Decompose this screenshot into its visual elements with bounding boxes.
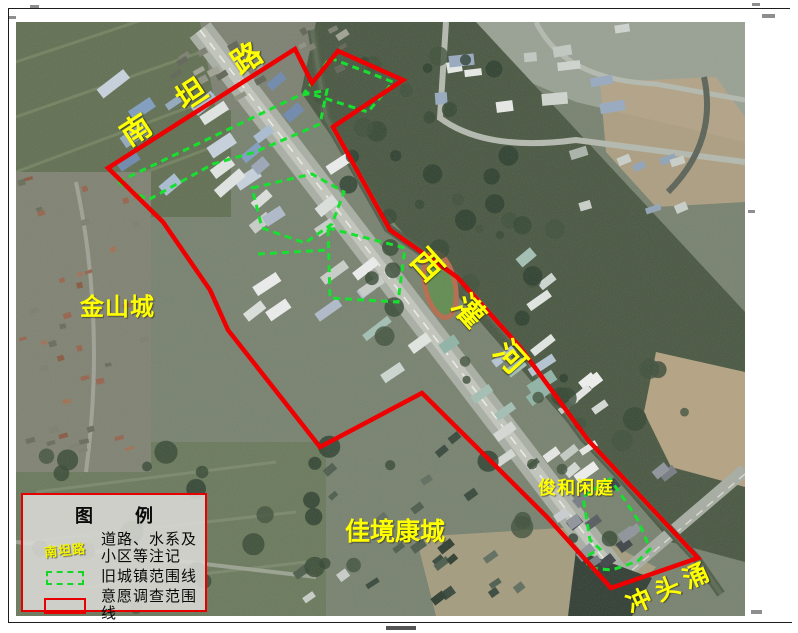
legend-label-survey: 意愿调查范围线 [101,589,205,623]
place-label-junhe-xianting: 俊和闲庭 [538,474,614,500]
legend-label-annotations: 道路、水系及 小区等注记 [101,532,197,566]
frame-top-line [8,8,790,9]
place-label-jinshan-city: 金山城 [80,287,155,322]
legend-symbol-road-text: 南坦路 [43,537,87,560]
margin-mark [752,3,760,6]
margin-mark [386,626,416,630]
red-solid-box-symbol [44,598,86,614]
legend-row-annotations: 南坦路 道路、水系及 小区等注记 [29,532,205,566]
place-label-jiajing-kangcheng: 佳境康城 [345,512,445,548]
legend-row-old-town: 旧城镇范围线 [29,569,205,586]
legend-row-survey: 意愿调查范围线 [29,589,205,623]
legend-label-annotations-line2: 小区等注记 [101,549,197,566]
margin-mark [751,610,762,614]
frame-left-line [8,8,9,622]
green-dashed-box-symbol [46,571,84,585]
margin-mark [30,5,39,8]
map-sheet: 南坦路 金山城 西灌河 佳境康城 俊和闲庭 冲头涌 图 例 南坦路 道路、水系及… [0,0,798,633]
legend-title: 图 例 [23,502,205,528]
margin-mark [748,210,755,213]
legend-label-annotations-line1: 道路、水系及 [101,532,197,549]
legend-label-old-town: 旧城镇范围线 [101,569,197,586]
legend: 图 例 南坦路 道路、水系及 小区等注记 旧城镇范围线 意愿调查范围线 [21,493,207,612]
margin-mark [9,16,16,19]
margin-mark [762,14,775,18]
